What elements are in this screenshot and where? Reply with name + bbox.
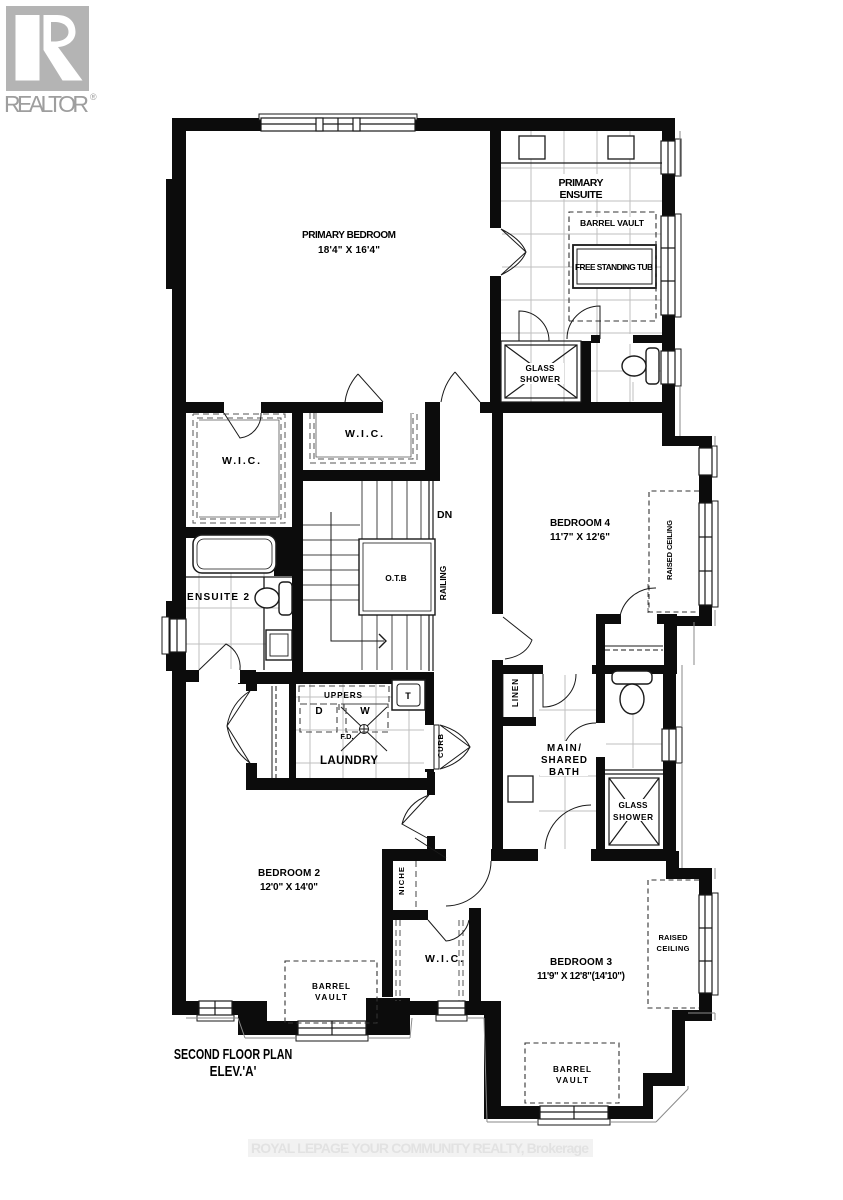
svg-text:BEDROOM 2: BEDROOM 2: [258, 868, 320, 879]
svg-text:RAISED: RAISED: [659, 933, 689, 942]
svg-text:CEILING: CEILING: [657, 944, 690, 953]
svg-text:NICHE: NICHE: [397, 867, 406, 895]
svg-text:VAULT: VAULT: [315, 993, 347, 1002]
svg-text:18'4" X 16'4": 18'4" X 16'4": [318, 245, 380, 256]
svg-text:BARREL VAULT: BARREL VAULT: [580, 218, 645, 228]
svg-text:D: D: [315, 706, 322, 717]
svg-text:SHOWER: SHOWER: [613, 813, 653, 822]
svg-text:ROYAL LEPAGE YOUR COMMUNITY RE: ROYAL LEPAGE YOUR COMMUNITY REALTY, Brok…: [251, 1140, 589, 1156]
svg-text:12'0" X 14'0": 12'0" X 14'0": [260, 882, 318, 893]
svg-text:LAUNDRY: LAUNDRY: [320, 755, 378, 767]
svg-text:®: ®: [90, 92, 97, 102]
svg-text:SHARED: SHARED: [541, 755, 587, 766]
svg-text:PRIMARY BEDROOM: PRIMARY BEDROOM: [302, 230, 396, 241]
svg-text:VAULT: VAULT: [556, 1076, 588, 1085]
svg-text:RAISED CEILING: RAISED CEILING: [665, 520, 674, 580]
svg-text:T: T: [405, 691, 411, 701]
svg-text:W: W: [360, 706, 370, 717]
svg-text:O.T.B: O.T.B: [385, 573, 406, 583]
svg-text:UPPERS: UPPERS: [324, 691, 363, 700]
svg-text:PRIMARY: PRIMARY: [559, 177, 604, 189]
svg-text:GLASS: GLASS: [526, 364, 556, 373]
svg-text:11'7" X 12'6": 11'7" X 12'6": [550, 532, 610, 543]
svg-text:11'9" X 12'8"(14'10"): 11'9" X 12'8"(14'10"): [537, 971, 625, 982]
svg-text:F.D.: F.D.: [340, 732, 353, 741]
svg-text:DN: DN: [437, 509, 452, 521]
svg-text:SHOWER: SHOWER: [520, 375, 560, 384]
svg-text:CURB: CURB: [436, 733, 445, 758]
svg-text:BARREL: BARREL: [553, 1065, 591, 1074]
svg-text:ENSUITE: ENSUITE: [560, 189, 603, 201]
svg-text:BATH: BATH: [549, 767, 579, 778]
svg-text:BEDROOM 3: BEDROOM 3: [550, 957, 612, 968]
svg-text:LINEN: LINEN: [511, 679, 520, 707]
svg-text:REALTOR: REALTOR: [4, 91, 89, 117]
svg-text:SECOND FLOOR PLAN: SECOND FLOOR PLAN: [174, 1045, 292, 1062]
svg-text:BEDROOM 4: BEDROOM 4: [550, 518, 610, 529]
svg-text:ENSUITE 2: ENSUITE 2: [187, 592, 249, 603]
svg-text:GLASS: GLASS: [619, 801, 649, 810]
svg-text:ELEV.'A': ELEV.'A': [210, 1063, 257, 1080]
svg-text:RAILING: RAILING: [438, 566, 448, 600]
svg-text:BARREL: BARREL: [312, 982, 350, 991]
svg-text:FREE STANDING TUB: FREE STANDING TUB: [575, 262, 653, 272]
